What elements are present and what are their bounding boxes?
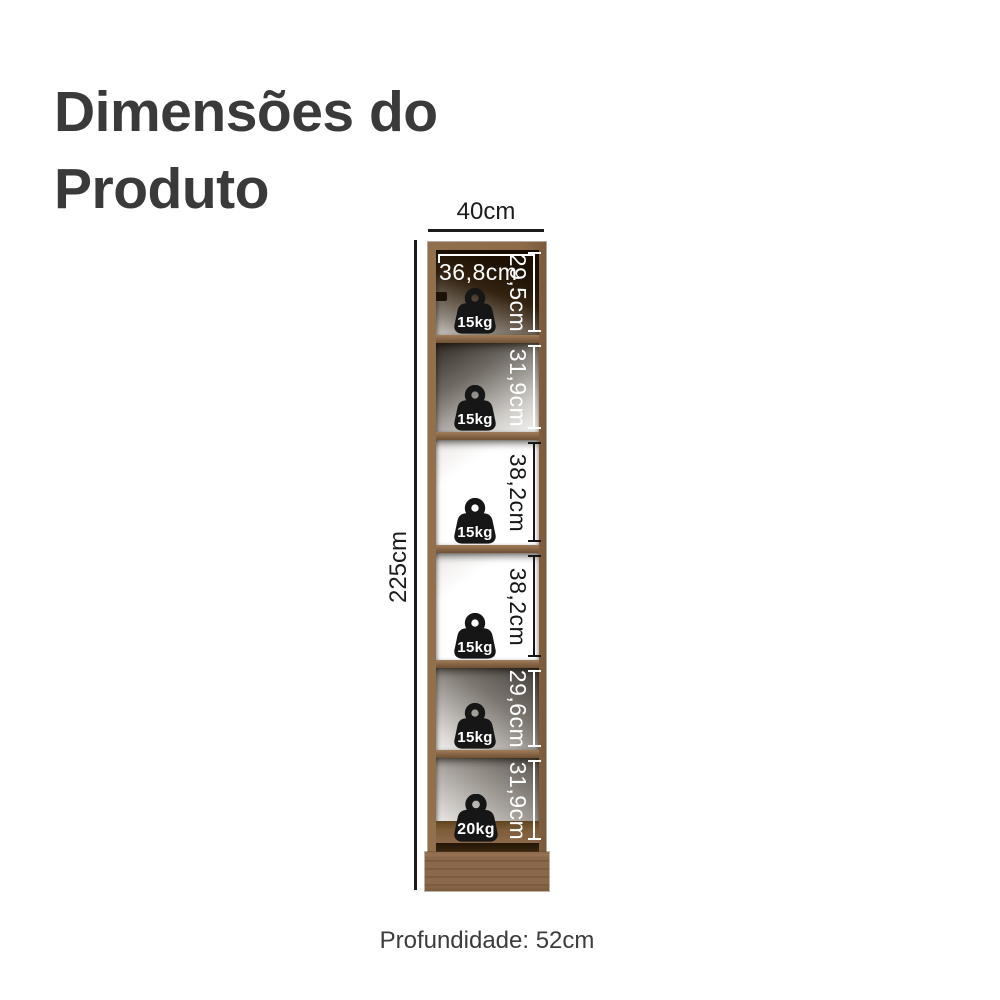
compartment-3: 38,2cm 15kg	[436, 440, 539, 545]
weight-capacity-label: 15kg	[449, 524, 501, 541]
weight-capacity-label: 15kg	[449, 639, 501, 656]
width-dimension-label: 40cm	[428, 198, 544, 226]
shelf-pin-notch	[436, 292, 447, 301]
product-dimensions-diagram: Dimensões do Produto 40cm 225cm 36,8cm 2…	[0, 0, 1000, 1000]
compartment-3-height-label: 38,2cm	[504, 453, 531, 531]
compartment-2: 31,9cm 15kg	[436, 343, 539, 432]
compartment-1-height-label: 29,5cm	[504, 253, 531, 331]
compartment-1: 36,8cm 29,5cm 15kg	[436, 250, 539, 335]
weight-capacity-label: 15kg	[449, 314, 501, 331]
compartment-5-height-line	[533, 670, 535, 747]
compartment-6: 31,9cm 20kg	[436, 758, 539, 843]
weight-icon: 15kg	[449, 613, 501, 660]
compartment-2-height-label: 31,9cm	[504, 348, 531, 426]
weight-icon: 15kg	[449, 385, 501, 432]
weight-icon: 15kg	[449, 288, 501, 335]
weight-capacity-label: 15kg	[449, 729, 501, 746]
weight-icon: 20kg	[448, 794, 504, 843]
compartment-4-height-label: 38,2cm	[504, 567, 531, 645]
compartment-1-height-line	[533, 252, 535, 332]
compartment-4-height-line	[533, 555, 535, 657]
page-title-line1: Dimensões do	[54, 74, 574, 151]
compartment-5: 29,6cm 15kg	[436, 668, 539, 750]
weight-capacity-label: 15kg	[449, 411, 501, 428]
compartment-5-height-label: 29,6cm	[504, 670, 531, 748]
compartment-6-height-line	[533, 760, 535, 840]
width-dimension-line	[428, 229, 544, 232]
compartment-4: 38,2cm 15kg	[436, 553, 539, 660]
compartment-6-height-label: 31,9cm	[504, 761, 531, 839]
weight-icon: 15kg	[449, 703, 501, 750]
weight-capacity-label: 20kg	[448, 821, 504, 839]
compartment-3-height-line	[533, 442, 535, 542]
compartment-2-height-line	[533, 345, 535, 429]
height-dimension-label: 225cm	[383, 507, 415, 627]
weight-icon: 15kg	[449, 498, 501, 545]
cabinet-base	[425, 852, 549, 891]
depth-label: Profundidade: 52cm	[327, 927, 647, 955]
cabinet: 36,8cm 29,5cm 15kg 31,9cm 15k	[428, 242, 546, 853]
